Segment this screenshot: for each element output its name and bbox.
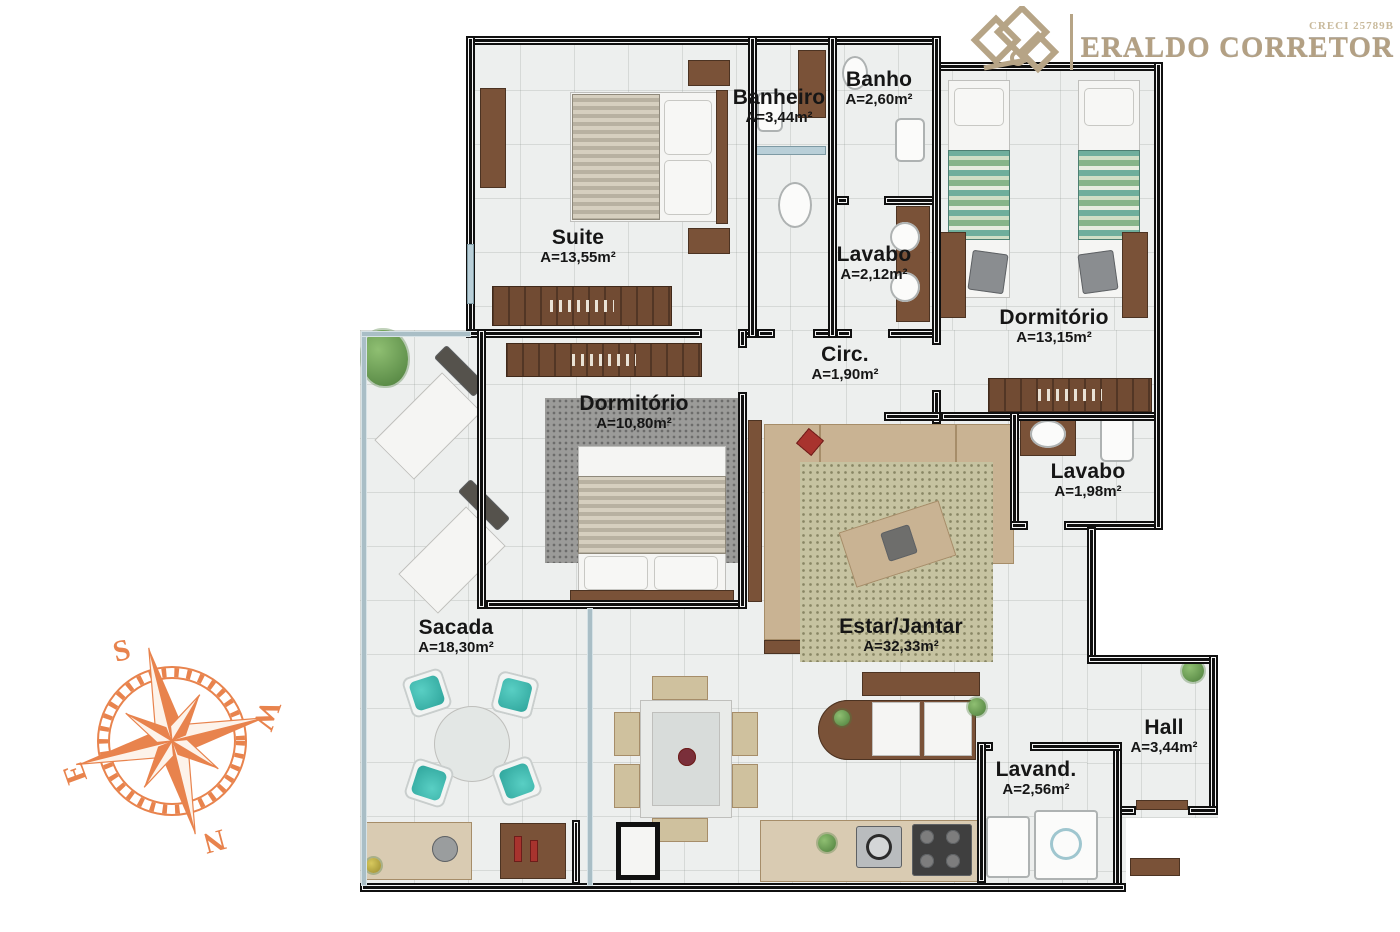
wall [1154,62,1163,530]
wall [466,36,940,45]
logo-mark-icon [966,6,1062,78]
desk-plant [834,710,850,726]
desk-plant [968,698,986,716]
room-name: Lavand. [996,758,1077,782]
kitchen-sink-bowl [866,834,892,860]
wall [738,392,747,609]
banheiro-shower-glass [756,146,826,155]
room-label-lavabo-2: Lavabo A=1,98m² [1051,460,1126,500]
balcony-glass-wall [362,332,366,885]
lavabo2-toilet [1100,416,1134,462]
stove-burner [946,830,960,844]
room-area: A=32,33m² [839,639,963,656]
wall [738,329,747,348]
wall [1087,655,1218,664]
sacada-plant [362,330,408,386]
room-area: A=3,44m² [1130,740,1197,757]
dorm2-wardrobe [506,343,702,377]
compass-rose: S W E N [62,628,282,854]
room-label-banheiro: Banheiro A=3,44m² [733,86,826,126]
lavabo2-sink [1030,420,1066,448]
room-area: A=18,30m² [418,640,493,657]
room-name: Dormitório [999,306,1108,330]
dorm1-pillow [954,88,1004,126]
wall [836,329,852,338]
room-name: Hall [1130,716,1197,740]
service-shaft [616,822,660,880]
wall [828,36,837,338]
room-label-dormitorio-2: Dormitório A=10,80m² [579,392,688,432]
balcony-glass-wall [362,332,470,336]
wall [977,742,986,883]
hall-entry-door [1136,800,1188,810]
dining-chair [652,818,708,842]
wall [360,883,1126,892]
dorm2-blanket [578,476,726,554]
suite-pillow [664,100,712,155]
room-label-estar-jantar: Estar/Jantar A=32,33m² [839,615,963,655]
room-label-circulacao: Circ. A=1,90m² [811,343,878,383]
stove-burner [920,830,934,844]
office-cabinet [872,702,920,756]
suite-window [467,244,474,304]
wall [748,36,757,338]
wall [486,600,747,609]
wall [1087,527,1096,664]
stove-burner [920,854,934,868]
wall [1010,521,1028,530]
room-area: A=2,60m² [845,92,912,109]
barbecue-tools [530,840,538,862]
room-label-dormitorio-1: Dormitório A=13,15m² [999,306,1108,346]
wall [1113,742,1122,892]
dining-chair [614,712,640,756]
room-label-lavanderia: Lavand. A=2,56m² [996,758,1077,798]
suite-pillow [664,160,712,215]
room-area: A=13,15m² [999,330,1108,347]
floor-plan-page: Banheiro A=3,44m² Banho A=2,60m² Suite A… [0,0,1400,932]
kitchen-plant [818,834,836,852]
room-area: A=2,12m² [837,267,912,284]
stove-burner [946,854,960,868]
company-name: ERALDO CORRETOR [1081,32,1394,65]
dorm1-chair [967,250,1008,295]
dining-chair [732,764,758,808]
dorm2-pillow [584,556,648,590]
dorm1-blanket [948,150,1010,240]
sacada-small-plant [366,858,381,873]
wall [932,36,941,345]
compass-letter-w: W [246,696,282,735]
barbecue-tools [514,836,522,862]
wall [466,329,702,338]
room-name: Lavabo [837,243,912,267]
wall [836,196,849,205]
wall [1209,655,1218,815]
realtor-logo: CRECI 25789B ERALDO CORRETOR [966,6,1394,78]
room-area: A=10,80m² [579,416,688,433]
room-name: Dormitório [579,392,688,416]
dining-chair [614,764,640,808]
suite-nightstand [688,228,730,254]
tv-console [862,672,980,696]
washing-machine-drum [1050,828,1082,860]
room-label-lavabo-superior: Lavabo A=2,12m² [837,243,912,283]
compass-letter-n: N [199,822,229,854]
dorm1-blanket [1078,150,1140,240]
room-area: A=3,44m² [733,110,826,127]
logo-divider [1070,14,1073,70]
wall [888,329,935,338]
room-label-sacada: Sacada A=18,30m² [418,616,493,656]
office-cabinet [924,702,972,756]
dorm1-wardrobe [988,378,1152,412]
room-area: A=1,98m² [1051,484,1126,501]
room-name: Estar/Jantar [839,615,963,639]
dorm1-chair [1077,250,1118,295]
wall [1030,742,1122,751]
room-label-suite: Suite A=13,55m² [540,226,615,266]
suite-bed-blanket [572,94,660,220]
dining-chair [652,676,708,700]
wall [884,196,935,205]
creci-number: CRECI 25789B [1309,20,1394,32]
suite-headboard [716,90,728,224]
room-name: Sacada [418,616,493,640]
wall [572,820,580,884]
room-name: Suite [540,226,615,250]
room-area: A=2,56m² [996,782,1077,799]
room-area: A=13,55m² [540,250,615,267]
outside-notch-right [1096,527,1163,655]
wall [941,412,1163,421]
compass-letter-s: S [110,633,134,669]
suite-nightstand [688,60,730,86]
banho-toilet [895,118,925,162]
suite-dresser [480,88,506,188]
dining-centerpiece [678,748,696,766]
room-name: Lavabo [1051,460,1126,484]
tv-panel [748,420,762,602]
wall [477,329,486,609]
banheiro-sink [778,182,812,228]
room-area: A=1,90m² [811,367,878,384]
suite-wardrobe [492,286,672,326]
hall-shoe-rack [1130,858,1180,876]
sacada-sink [432,836,458,862]
dorm1-desk [940,232,966,318]
room-label-banho: Banho A=2,60m² [845,68,912,108]
dining-chair [732,712,758,756]
dorm1-pillow [1084,88,1134,126]
wall [884,412,941,421]
room-name: Circ. [811,343,878,367]
wall [1064,521,1163,530]
outside-notch-bottom-right [1126,818,1218,887]
balcony-glass-divider [588,609,592,885]
dorm2-pillow [654,556,718,590]
wall [1010,412,1019,530]
room-name: Banheiro [733,86,826,110]
laundry-tub [986,816,1030,878]
room-label-hall: Hall A=3,44m² [1130,716,1197,756]
wall [1188,806,1218,815]
dorm1-desk [1122,232,1148,318]
wall [757,329,775,338]
room-name: Banho [845,68,912,92]
